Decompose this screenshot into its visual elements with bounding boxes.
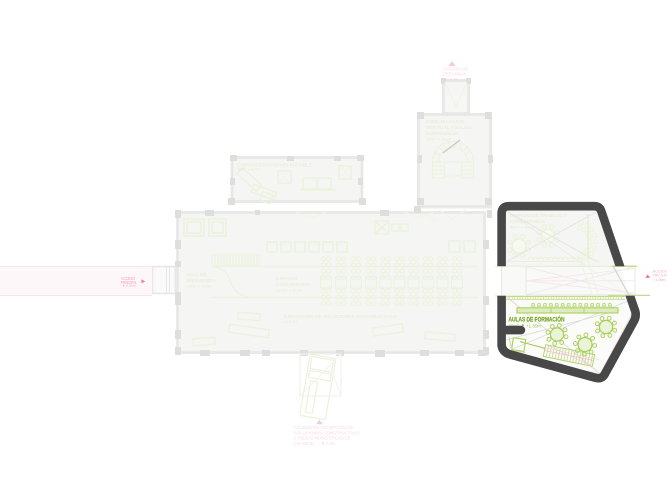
svg-text:TALLERES: TALLERES [653, 273, 667, 278]
svg-text:HALL DE: HALL DE [187, 272, 207, 278]
svg-text:LAFARGE ▼ 0.00: LAFARGE ▼ 0.00 [294, 441, 335, 446]
svg-text:AULAS DE FORMACIÓN: AULAS DE FORMACIÓN [509, 315, 565, 323]
svg-text:46m² ▪ +0.70: 46m² ▪ +0.70 [510, 225, 535, 230]
svg-text:+1.35m: +1.35m [526, 324, 541, 329]
svg-text:▪ 1.00m: ▪ 1.00m [654, 278, 666, 282]
svg-text:SOLUCIONES CONSTRUCTIVAS: SOLUCIONES CONSTRUCTIVAS [294, 430, 360, 435]
svg-text:▼ 0.00m: ▼ 0.00m [122, 284, 136, 288]
svg-text:ESPACIO DE TRABAJO Y: ESPACIO DE TRABAJO Y [510, 213, 568, 219]
svg-text:VERTICAL Y SALIDA: VERTICAL Y SALIDA [426, 125, 473, 131]
svg-text:70m² ▪ +1.00: 70m² ▪ +1.00 [426, 137, 452, 142]
svg-text:Y PIEZAS MUSEÍSTICAS DE: Y PIEZAS MUSEÍSTICAS DE [294, 436, 351, 441]
svg-text:▼ +1.00: ▼ +1.00 [443, 77, 459, 82]
svg-text:ACCESO DE RECEPCIÓN DE: ACCESO DE RECEPCIÓN DE [294, 425, 353, 430]
svg-text:120m² ▪ +0.00: 120m² ▪ +0.00 [276, 288, 303, 293]
svg-text:90m² ▪ +0.00: 90m² ▪ +0.00 [237, 168, 260, 172]
svg-text:▪ +0.00: ▪ +0.00 [284, 319, 297, 324]
svg-text:28m² ▪ +0.00: 28m² ▪ +0.00 [187, 284, 212, 289]
svg-text:COMUNICACIÓN: COMUNICACIÓN [426, 118, 465, 125]
svg-text:ESPACIO: ESPACIO [276, 276, 297, 282]
svg-text:EXPOSICIÓN DE SOLUCIONES CONST: EXPOSICIÓN DE SOLUCIONES CONSTRUCTIVAS [284, 313, 397, 320]
